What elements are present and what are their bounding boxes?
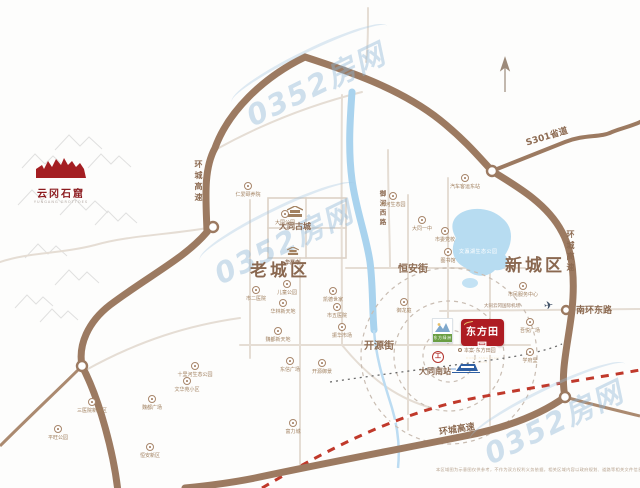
site-marker-icon: [458, 348, 462, 352]
pond: [462, 278, 478, 288]
map-marker-label: 魏都广场: [142, 404, 162, 411]
district-label: 新城区: [505, 251, 565, 276]
map-canvas: 0352房网 0352房网 0352房网 云冈石窟 YUNGANG GROTTO…: [0, 0, 640, 488]
map-marker-label: 魏都新天地: [265, 336, 290, 343]
airport-note: 大同云冈国际机场: [484, 303, 520, 309]
railway-station-icon: 工: [432, 351, 444, 363]
map-marker-label: 汽车客运东站: [450, 183, 480, 190]
mountain-emblem-icon: [433, 319, 452, 334]
map-marker-label: 东信广场: [280, 366, 300, 373]
map-marker: 开源御景: [318, 359, 326, 367]
map-marker-label: 平旺公园: [48, 434, 68, 441]
lake-label: 文瀛湖生态公园: [459, 248, 498, 255]
project-logo-dongfanglvzhou: 东方绿洲: [432, 318, 453, 343]
map-marker: 文华苑小区: [183, 377, 191, 385]
map-marker: 御龙庭: [400, 298, 408, 306]
disclaimer-text: 本区域图为示意图仅供参考，不作为双方权利义务依据，相关区域内容以政府规划、道路等…: [436, 467, 640, 473]
compass-north-icon: [501, 58, 509, 92]
yungang-subtitle: YUNGANG GROTTOES: [30, 200, 92, 204]
road-label: 开源街: [364, 337, 394, 352]
map-marker: 十里河生态公园: [191, 362, 199, 370]
map-marker: 市二医院: [252, 286, 260, 294]
map-marker: 魏都广场: [148, 395, 156, 403]
site-note: 本案·东方田园: [455, 346, 499, 354]
road-label: 南环东路: [576, 303, 612, 316]
map-marker-label: 图书馆: [440, 257, 455, 264]
map-marker-label: 市五医院: [327, 312, 347, 319]
map-marker: 恒安新区: [146, 443, 154, 451]
map-marker-label: 儿童公园: [277, 289, 297, 296]
landmark-datong-old-town: 大同古城: [279, 202, 311, 232]
map-marker-label: 振华市场: [332, 332, 352, 339]
map-marker-label: 御龙庭: [396, 307, 411, 314]
map-marker: 振华市场: [338, 323, 346, 331]
map-marker-label: 华林新天地: [270, 308, 295, 315]
map-marker-label: 学府里: [522, 357, 537, 364]
landmark-label: 华严寺: [285, 259, 300, 266]
map-marker: 凯德世家: [329, 287, 337, 295]
map-marker-label: 富力城: [285, 428, 300, 435]
map-marker: 三医院新院区: [88, 398, 96, 406]
map-marker: 平旺公园: [54, 425, 62, 433]
station-label: 大同南站: [419, 366, 451, 377]
lake: [452, 209, 511, 276]
map-marker: 图书馆: [444, 248, 452, 256]
road-label: 恒安街: [398, 260, 428, 275]
airplane-icon: ✈: [543, 298, 554, 312]
map-marker: 魏都新天地: [274, 327, 282, 335]
yungang-title: 云冈石窟: [30, 185, 92, 200]
road-label: 环城高速: [193, 160, 204, 204]
map-marker: 市五医院: [333, 303, 341, 311]
road-label: 环城高速: [565, 230, 576, 274]
road-label: 御河西路: [377, 190, 387, 228]
map-marker-label: 凯德世家: [323, 296, 343, 303]
map-marker: 华林新天地: [279, 299, 287, 307]
district-label: 老城区: [250, 256, 310, 281]
map-marker-label: 十里河生态公园: [177, 371, 212, 378]
map-marker: 学府里: [526, 348, 534, 356]
project-logo-dongfangtianyuan: 东方田园 DONG FANG TIAN YUAN: [461, 319, 504, 346]
map-marker: 儿童公园: [283, 280, 291, 288]
map-marker-label: 大同一中: [412, 225, 432, 232]
map-marker: 富力城: [289, 419, 297, 427]
landmark-huayan-temple: 华严寺: [285, 240, 300, 266]
map-marker: 东信广场: [286, 357, 294, 365]
map-marker-label: 开源御景: [312, 368, 332, 375]
sister-logo-name: 东方绿洲: [433, 334, 452, 342]
southwest-road: [0, 366, 82, 446]
map-marker: 吾悦广场: [526, 318, 534, 326]
map-marker-label: 市民服务中心: [508, 291, 538, 298]
landmark-label: 大同古城: [279, 221, 311, 232]
map-marker: 市委党校: [441, 227, 449, 235]
train-icon: [449, 364, 480, 373]
yungang-grottoes-logo: 云冈石窟 YUNGANG GROTTOES: [30, 156, 92, 204]
map-marker-label: 御河生态园: [380, 201, 405, 208]
map-marker-label: 恒安新区: [140, 452, 160, 459]
phoenix-icon: [464, 321, 473, 326]
map-marker-label: 三医院新院区: [77, 407, 107, 414]
map-marker-label: 市二医院: [246, 295, 266, 302]
map-marker-label: 吾悦广场: [520, 327, 540, 334]
map-marker: 仁爱颐养院: [244, 182, 252, 190]
grottoes-silhouette-icon: [34, 156, 88, 180]
map-marker-label: 仁爱颐养院: [235, 191, 260, 198]
map-marker: 市民服务中心: [519, 282, 527, 290]
map-marker: 汽车客运东站: [461, 174, 469, 182]
city-gate-icon: [287, 206, 303, 217]
city-gate-icon: [287, 247, 299, 255]
project-subtitle: DONG FANG TIAN YUAN: [465, 354, 500, 364]
map-marker-label: 市委党校: [435, 236, 455, 243]
map-marker-label: 文华苑小区: [174, 386, 199, 393]
map-marker: 御河生态园: [389, 192, 397, 200]
map-marker: 大同一中: [418, 216, 426, 224]
site-note-text: 本案·东方田园: [464, 347, 496, 354]
